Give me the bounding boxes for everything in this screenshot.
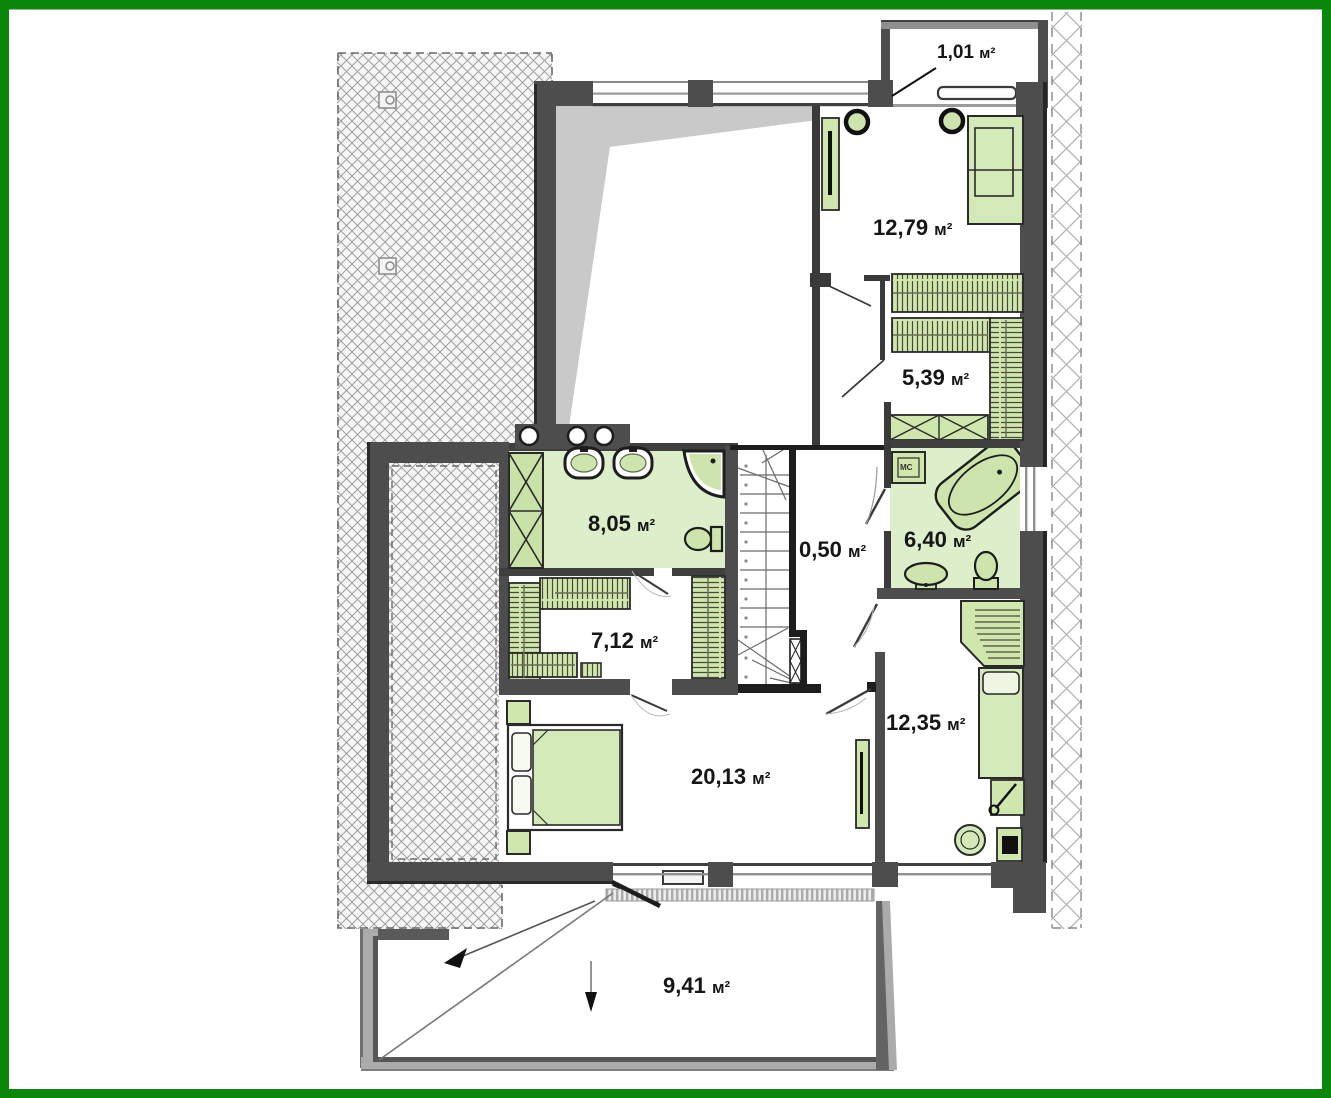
svg-text:1,01 м²: 1,01 м² — [937, 42, 995, 63]
svg-text:MC: MC — [900, 463, 913, 472]
